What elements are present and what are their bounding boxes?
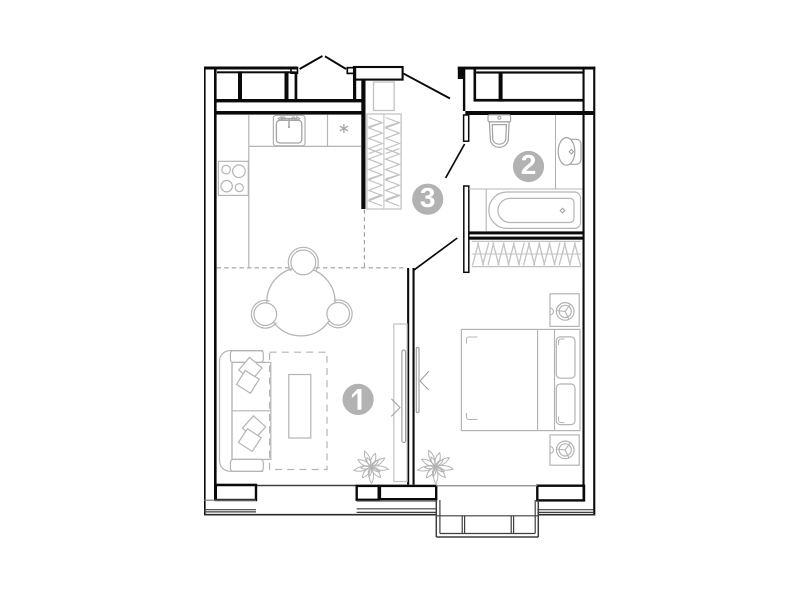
svg-text:2: 2 [521, 149, 537, 180]
svg-text:3: 3 [420, 182, 436, 213]
